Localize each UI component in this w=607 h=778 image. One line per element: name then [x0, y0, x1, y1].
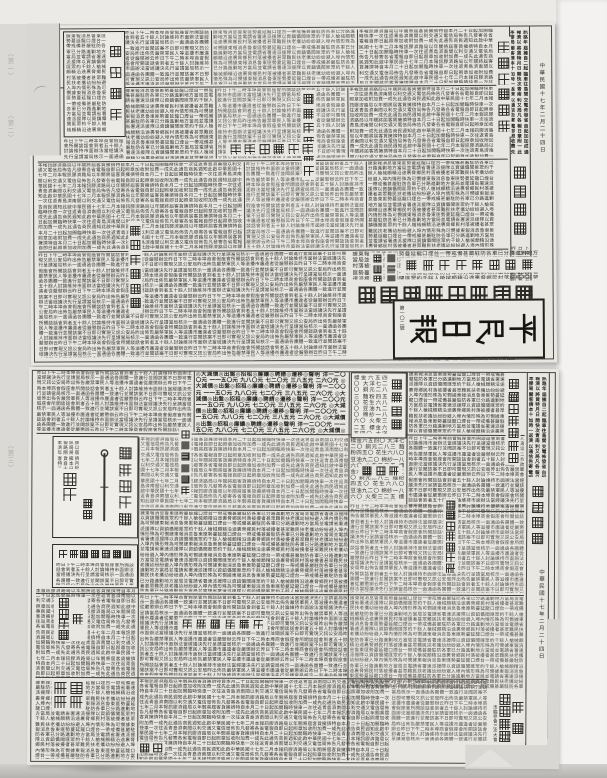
council-headline-main	[497, 693, 525, 743]
scanner-margin-right	[556, 0, 607, 778]
text-column-tile: 昨日下午二時本埠商會假座會所開談話會到者五十餘人討論維持市面辦法當經議決先行呈請…	[140, 595, 348, 676]
text-column-tile: 本報訊膠濟路局以年關將屆客貨擁擠特自本月二十日起加開臨時快車一次往返青島濟南間以…	[359, 29, 493, 84]
market-section-label	[390, 376, 404, 432]
text-column-tile: 本報訊膠濟路局以年關將屆客貨擁擠特自本月二十日起加開臨時快車一次往返青島濟南間以…	[510, 31, 529, 155]
text-column-tile: 昨日下午二時本埠商會假座會所開談話會到者五十餘人討論維持市面辦法當經議決先行呈請…	[125, 31, 209, 86]
classified-listings: ◎大減價◎出盤◎招租◎廉讓◎聘請◎遷移◎聲明 洋一二〇〇元 一一五〇元 九八〇元…	[196, 372, 346, 435]
lantern-ad-headline	[117, 443, 133, 529]
text-column-tile: 本報訊膠濟路局以年關將屆客貨擁擠特自本月二十日起加開臨時快車一次往返青島濟南間以…	[349, 87, 493, 158]
masthead-glyph-ping	[509, 312, 541, 344]
running-title	[512, 161, 528, 241]
text-column-tile: 昨日下午二時本埠商會假座會所開談話會到者五十餘人討論維持市面辦法當經議決先行呈請…	[38, 252, 347, 358]
text-column-tile: 本報訊膠濟路局以年關將屆客貨擁擠特自本月二十日起加開臨時快車一次往返青島濟南間以…	[140, 437, 348, 508]
shipping-schedule-label	[358, 464, 402, 476]
notice-label	[137, 741, 165, 753]
text-column-tile: 本報訊膠濟路局以年關將屆客貨擁擠特自本月二十日起加開臨時快車一次往返青島濟南間以…	[139, 679, 389, 760]
incense-stick-illustration	[97, 447, 111, 527]
office-ad-box: 昨日下午二時本埠商會假座會所開談話會到者五十餘人討論維持市面辦法當經議決先行呈請…	[52, 544, 138, 588]
section-headline	[496, 37, 512, 137]
section-headline	[443, 499, 458, 574]
running-header-rule	[525, 373, 528, 761]
lantern-ad-box: 本報訊膠濟路局以年關將屆客貨擁擠特自本月二十日起加開臨時快車一次往返青島濟南間以…	[52, 436, 138, 538]
pencil-page-mark: （第二）	[5, 112, 15, 164]
text-column-tile: 昨日下午二時本埠商會假座會所開談話會到者五十餘人討論維持市面辦法當經議決先行呈請…	[37, 371, 192, 432]
section-headline	[128, 221, 143, 313]
notice-box: 據東報消息魯東匪勢蔓延龍口煙台一帶戒備甚嚴駐防各軍已分路進剿地方當局並電請省署速…	[63, 31, 126, 137]
scan-shadow-smudge	[58, 763, 144, 774]
scanner-margin-top	[0, 0, 607, 24]
section-headline	[226, 142, 318, 157]
section-headline	[178, 427, 191, 497]
market-section-box: 標金六五四〇 大洋七二〇 銅元二八三 麵粉四五〇 花生六八〇 豆油九二〇 棉紗一…	[351, 372, 407, 438]
market-section-rows: 標金六五四〇 大洋七二〇 銅元二八三 麵粉四五〇 花生六八〇 豆油九二〇 棉紗一…	[354, 375, 388, 433]
masthead-glyph-min	[475, 313, 507, 345]
masthead: 第一〇二號	[393, 298, 545, 359]
office-ad-text: 昨日下午二時本埠商會假座會所開談話會到者五十餘人討論維持市面辦法當經議決先行呈請…	[56, 563, 134, 585]
masthead-publisher-line: 本報發行所膠澳商埠 電話一五一號 每份售銅元四枚 廣告價目面議	[393, 356, 541, 362]
running-dateline: 中華民國十七年二月二十四日	[531, 62, 546, 252]
masthead-issue-number: 第一〇二號	[397, 305, 406, 353]
masthead-glyph-ri	[441, 313, 473, 345]
running-dateline: 中華民國十七年二月二十四日	[530, 569, 545, 734]
text-column-tile: 據東報消息魯東匪勢蔓延龍口煙台一帶戒備甚嚴駐防各軍已分路進剿地方當局並電請省署速…	[125, 88, 213, 159]
text-column-tile: 昨日下午二時本埠商會假座會所開談話會到者五十餘人討論維持市面辦法當經議決先行呈請…	[391, 680, 487, 740]
notice-box-text: 據東報消息魯東匪勢蔓延龍口煙台一帶戒備甚嚴駐防各軍已分路進剿地方當局並電請省署速…	[66, 34, 107, 132]
section-headline	[505, 377, 520, 465]
text-column-tile: 據東報消息魯東匪勢蔓延龍口煙台一帶戒備甚嚴駐防各軍已分路進剿地方當局並電請省署速…	[349, 596, 523, 689]
pencil-page-mark: （第一）	[5, 50, 15, 102]
lantern-ad-price	[61, 471, 77, 503]
lantern-ad-fineprint: 本報訊膠濟路局以年關將屆客貨擁擠特自本月二十日起加開臨時快車一次往返青島濟南間以…	[57, 441, 79, 469]
text-column-tile: 據東報消息魯東匪勢蔓延龍口煙台一帶戒備甚嚴駐防各軍已分路進剿地方當局並電請省署速…	[213, 30, 355, 85]
running-title	[528, 481, 546, 549]
headline-kicker	[400, 257, 538, 274]
notice-box-label	[108, 36, 123, 130]
office-ad-title	[56, 548, 134, 560]
pencil-page-mark: （第三）	[5, 442, 15, 494]
newspaper-page-lower: 昨日下午二時本埠商會假座會所開談話會到者五十餘人討論維持市面辦法當經議決先行呈請…	[27, 367, 559, 767]
text-column-tile: 據東報消息魯東匪勢蔓延龍口煙台一帶戒備甚嚴駐防各軍已分路進剿地方當局並電請省署速…	[140, 511, 348, 592]
text-column-tile: 昨日下午二時本埠商會假座會所開談話會到者五十餘人討論維持市面辦法當經議決先行呈請…	[350, 504, 524, 593]
newspaper-scan: 昨日下午二時本埠商會假座會所開談話會到者五十餘人討論維持市面辦法當經議決先行呈請…	[0, 0, 607, 778]
text-column-tile: 昨日下午二時本埠商會假座會所開談話會到者五十餘人討論維持市面辦法當經議決先行呈請…	[64, 139, 124, 159]
section-headline	[301, 90, 316, 180]
masthead-glyph-bao	[407, 313, 439, 345]
lost-notice-headline	[51, 679, 85, 711]
section-headline	[178, 617, 268, 630]
text-column-tile: 本報訊膠濟路局以年關將屆客貨擁擠特自本月二十日起加開臨時快車一次往返青島濟南間以…	[528, 377, 546, 477]
text-column-tile: 據東報消息魯東匪勢蔓延龍口煙台一帶戒備甚嚴駐防各軍已分路進剿地方當局並電請省署速…	[368, 161, 495, 248]
text-column-tile: 據東報消息魯東匪勢蔓延龍口煙台一帶戒備甚嚴駐防各軍已分路進剿地方當局並電請省署速…	[409, 373, 505, 433]
school-ad-headline	[54, 597, 88, 641]
lantern-ad-subline	[81, 497, 93, 521]
newspaper-page-upper: 昨日下午二時本埠商會假座會所開談話會到者五十餘人討論維持市面辦法當經議決先行呈請…	[29, 22, 557, 365]
